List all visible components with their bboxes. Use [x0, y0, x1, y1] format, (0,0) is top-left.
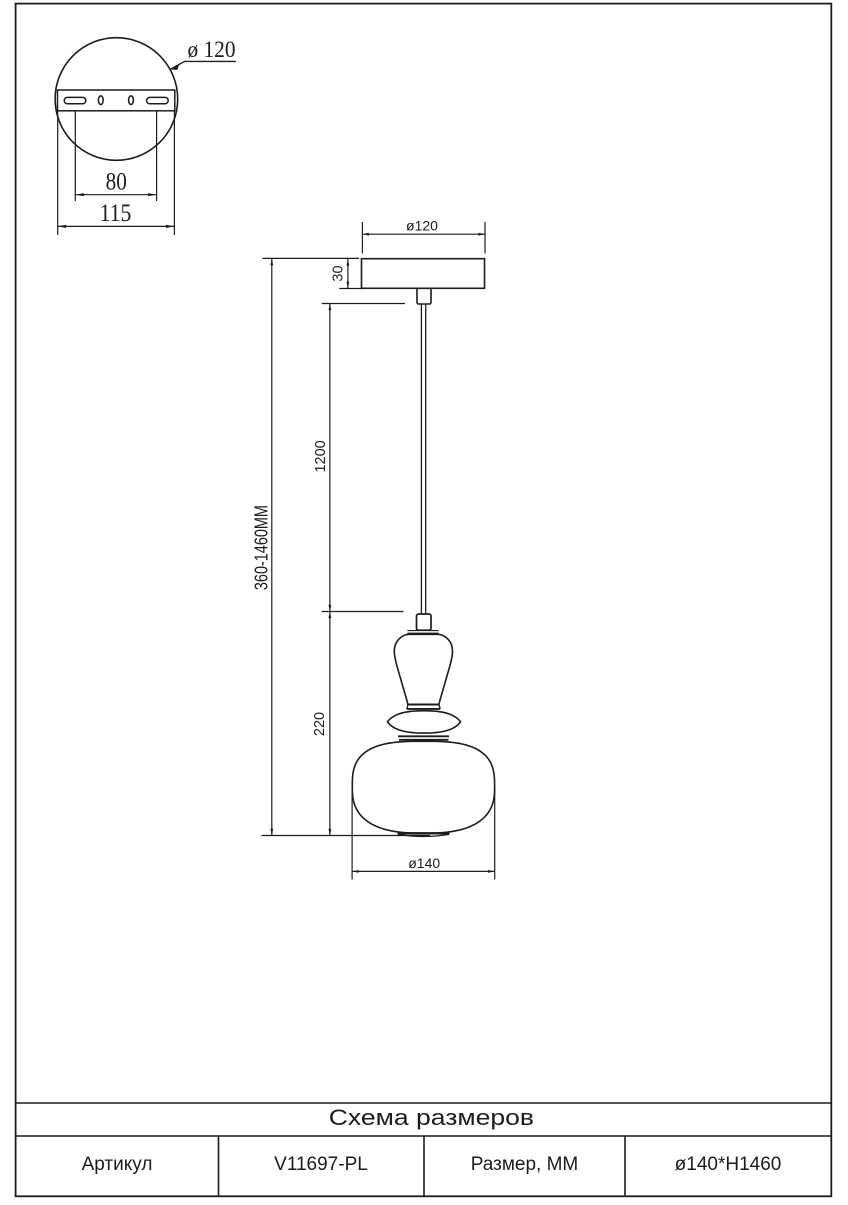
svg-text:ø 120: ø 120	[187, 36, 235, 62]
svg-text:ø140*H1460: ø140*H1460	[675, 1154, 782, 1175]
svg-text:V11697-PL: V11697-PL	[274, 1154, 368, 1175]
svg-text:115: 115	[100, 200, 132, 228]
svg-text:ø120: ø120	[406, 217, 438, 233]
svg-text:1200: 1200	[313, 440, 329, 472]
svg-text:Артикул: Артикул	[82, 1154, 153, 1175]
svg-text:Схема размеров: Схема размеров	[329, 1106, 534, 1131]
svg-text:ø140: ø140	[408, 855, 440, 871]
svg-text:80: 80	[106, 168, 127, 196]
svg-text:Размер, ММ: Размер, ММ	[471, 1154, 579, 1175]
svg-text:30: 30	[330, 265, 346, 281]
svg-text:220: 220	[312, 712, 328, 736]
svg-text:360-1460MM: 360-1460MM	[251, 505, 272, 590]
